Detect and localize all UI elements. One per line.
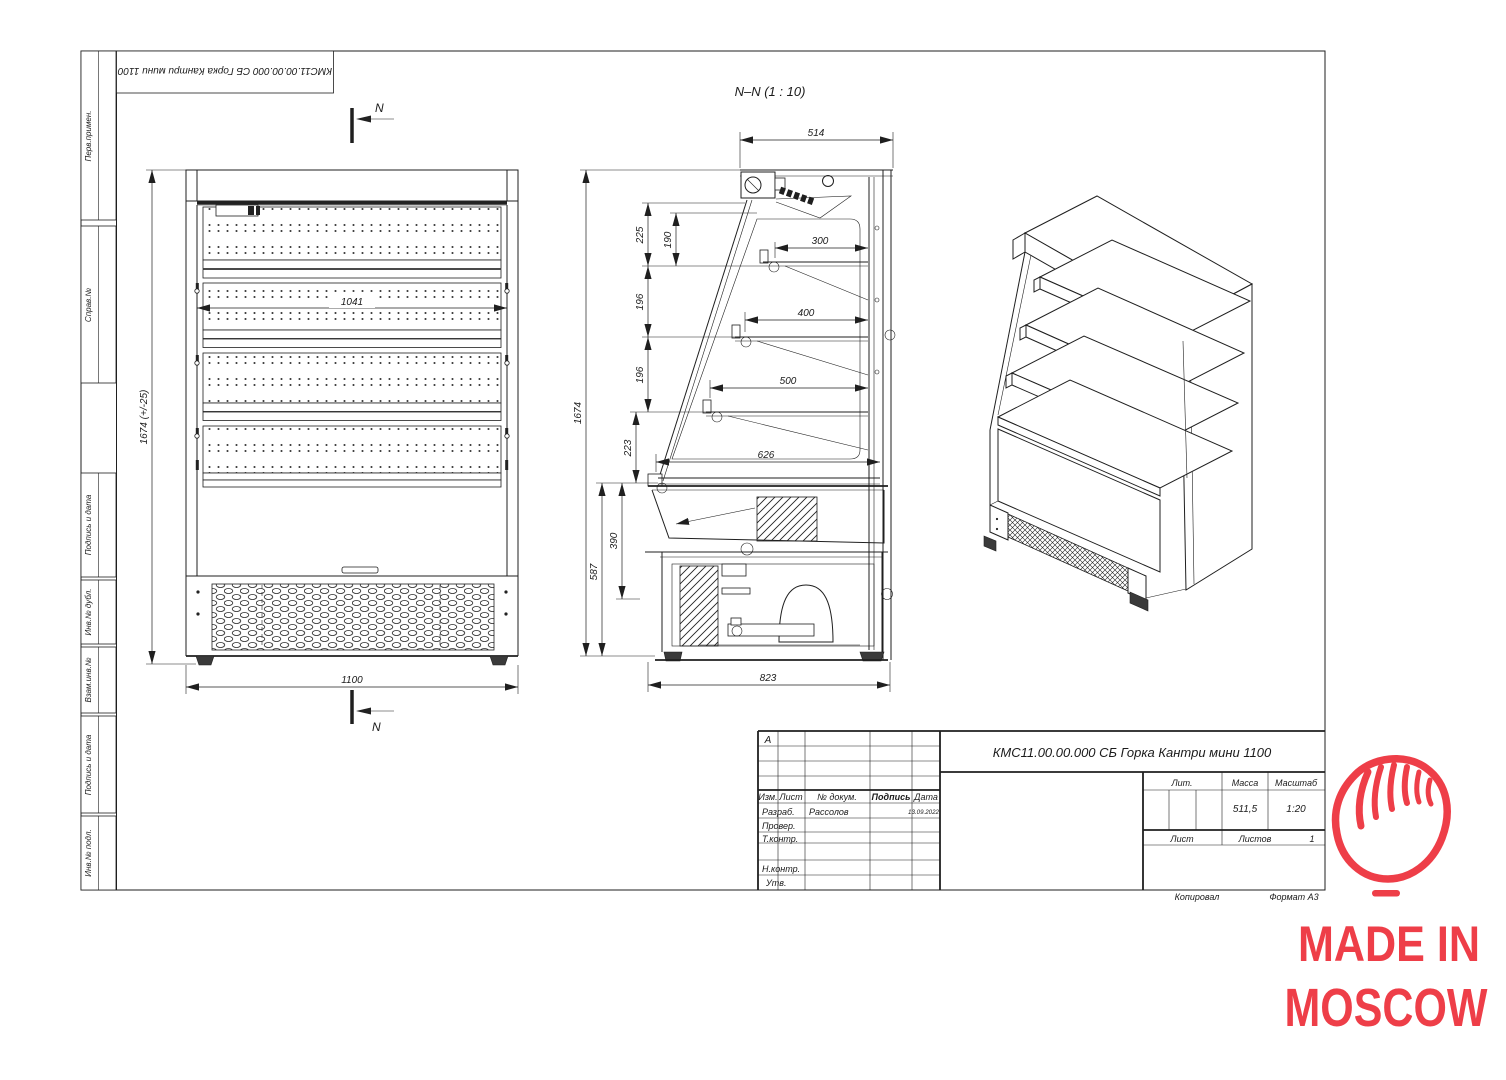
zone-letter: А [764,735,772,746]
lit-label: Лит. [1170,778,1192,788]
row-prover: Провер. [762,821,796,831]
dim-223: 223 [623,439,634,457]
section-title: N–N (1 : 10) [735,84,806,99]
front-view: 1674 (+/-25) 1041 1100 N N [139,101,518,734]
margin-label-inv-dubl: Инв.№ дубл. [84,589,93,636]
logo-line1: MADE IN [1298,916,1480,972]
corner-stamp-text: КМС11.00.00.000 СБ Горка Кантри мини 110… [117,65,332,76]
cut-label-bottom: N [372,720,381,734]
ventilation-grille [212,584,494,650]
row-razrab: Разраб. [762,807,795,817]
col-list: Лист [778,792,803,802]
title-block: А КМС11.00.00.000 СБ Горка Кантри мини 1… [758,731,1325,902]
cut-label-top: N [375,101,384,115]
dim-front-width: 1100 [341,675,363,686]
razrab-date: 13.09.2022 [908,809,940,816]
dim-front-height: 1674 (+/-25) [139,390,150,445]
listov-value: 1 [1309,834,1314,844]
dim-390: 390 [609,532,620,549]
dim-base-width: 823 [760,673,777,684]
isometric-view [984,196,1252,611]
foot-left [196,656,214,665]
dim-deck: 626 [758,450,775,461]
dim-shelf2: 400 [798,308,815,319]
foot-right [490,656,508,665]
margin-label-vzam-inv: Взам.инв.№ [84,657,93,702]
listov-label: Листов [1238,834,1272,844]
razrab-name: Рассолов [809,807,849,817]
sheet-margin-columns: Перв.примен. Справ.№ Подпись и дата Инв.… [81,51,116,890]
list-label: Лист [1169,834,1194,844]
dim-190: 190 [663,231,674,248]
col-dokum: № докум. [817,792,857,802]
row-tkontr: Т.контр. [762,834,798,844]
masshtab-value: 1:20 [1286,804,1306,815]
insulation-block-upper [757,497,817,541]
doc-title: КМС11.00.00.000 СБ Горка Кантри мини 110… [993,745,1272,760]
margin-label-perv-primen: Перв.примен. [84,111,93,162]
dim-587: 587 [589,563,600,580]
section-shelves [703,250,868,450]
dim-196b: 196 [635,366,646,383]
col-podpis: Подпись [872,792,911,802]
balloon-basket-dash [1372,890,1400,897]
masshtab-label: Масштаб [1275,778,1318,788]
dim-225: 225 [635,226,646,244]
logo-line2: MOSCOW [1285,978,1488,1038]
margin-label-podpis-data2: Подпись и дата [84,734,93,795]
dim-depth-top: 514 [808,128,825,139]
drawing-page: Перв.примен. Справ.№ Подпись и дата Инв.… [0,0,1506,1080]
margin-label-inv-podl: Инв.№ подл. [84,829,93,876]
dim-shelf3: 500 [780,376,797,387]
section-view: N–N (1 : 10) [573,84,895,692]
massa-value: 511,5 [1233,804,1258,815]
section-cut-marker-top: N [352,101,394,143]
roller-blind-box [741,172,775,198]
massa-label: Масса [1232,778,1259,788]
kopiroval-label: Копировал [1175,892,1220,902]
dim-196a: 196 [635,293,646,310]
dim-section-height: 1674 [573,401,584,424]
section-cut-marker-bottom: N [352,690,394,734]
corner-stamp: КМС11.00.00.000 СБ Горка Кантри мини 110… [117,51,334,93]
margin-label-sprav-no: Справ.№ [84,288,93,322]
row-nkontr: Н.контр. [762,864,800,874]
margin-label-podpis-data1: Подпись и дата [84,494,93,555]
col-izm: Изм. [758,792,777,802]
format-label: Формат А3 [1269,892,1318,902]
drawing-sheet: Перв.примен. Справ.№ Подпись и дата Инв.… [0,0,1506,1080]
balloon-icon [1336,759,1448,897]
handle [342,567,378,573]
dim-shelf1: 300 [812,236,829,247]
row-utv: Утв. [765,878,786,888]
col-data: Дата [913,792,938,802]
insulation-block-lower [680,566,718,646]
dim-front-inner-width: 1041 [341,297,363,308]
